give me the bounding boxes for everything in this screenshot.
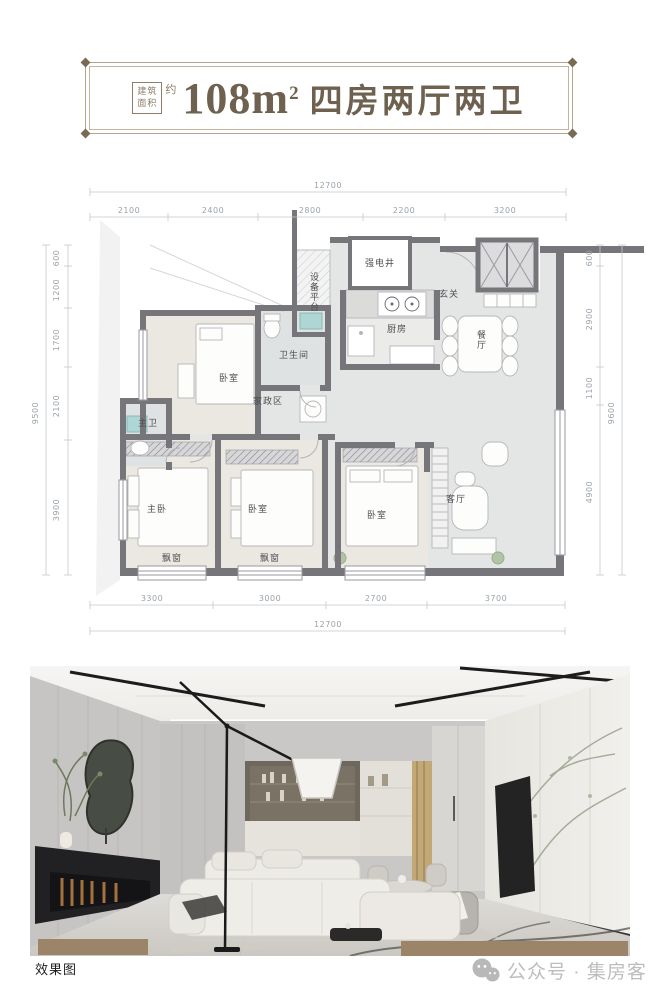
room-label-bay-window-mid: 飘窗 <box>260 552 280 564</box>
dim-left-2: 1200 <box>52 279 61 301</box>
photo-bar-right <box>401 941 628 956</box>
laundry-washer <box>300 396 326 422</box>
dim-top-5: 3200 <box>494 206 516 215</box>
plan-shadow <box>96 220 120 596</box>
dim-left-4: 2100 <box>52 395 61 417</box>
elevator-shaft <box>478 240 536 290</box>
room-label-bedroom3: 卧室 <box>367 509 387 521</box>
room-label-master-bath: 主卫 <box>138 417 158 429</box>
interior-rendering-svg <box>30 666 630 956</box>
banner-inner-frame: 建筑面积 约 108m2 四房两厅两卫 <box>89 66 569 130</box>
vase <box>60 832 72 848</box>
room-label-platform: 设备平台 <box>308 272 319 312</box>
layout-title: 四房两厅两卫 <box>310 74 526 122</box>
wavy-mirror <box>86 740 133 834</box>
room-label-bedroom4: 卧室 <box>219 372 239 384</box>
interior-rendering-photo <box>30 666 630 956</box>
room-label-dining: 餐厅 <box>475 329 486 350</box>
area-tag-box: 建筑面积 <box>132 82 162 114</box>
dim-bottom-4: 3700 <box>485 594 507 603</box>
photo-caption: 效果图 <box>35 959 77 978</box>
watermark-text: 公众号 · 集房客 <box>507 957 647 984</box>
dim-left-5: 3900 <box>52 499 61 521</box>
corner-mark <box>568 129 578 139</box>
watermark: 公众号 · 集房客 <box>472 957 647 984</box>
corner-mark <box>81 129 91 139</box>
dim-bottom-1: 3300 <box>141 594 163 603</box>
room-label-shaft: 强电井 <box>365 257 395 269</box>
corner-mark <box>568 58 578 68</box>
photo-bar-left <box>38 939 148 955</box>
dim-left-1: 600 <box>52 250 61 267</box>
leaning-art-panel <box>495 776 535 898</box>
bed-3 <box>346 466 418 546</box>
master-bed <box>128 468 208 546</box>
room-label-master-bedroom: 主卧 <box>147 503 167 515</box>
title-banner: 建筑面积 约 108m2 四房两厅两卫 <box>85 62 573 134</box>
dim-top-4: 2200 <box>393 206 415 215</box>
room-label-bathroom: 卫生间 <box>279 349 309 361</box>
setback-lines <box>150 245 292 312</box>
dim-left-3: 1700 <box>52 329 61 351</box>
approx-label: 约 <box>165 81 176 97</box>
dim-bottom-total: 12700 <box>314 620 342 629</box>
dim-top-3: 2800 <box>299 206 321 215</box>
area-tag-top: 建筑 <box>133 86 161 98</box>
dim-right-4: 4900 <box>585 481 594 503</box>
room-label-bedroom2: 卧室 <box>248 503 268 515</box>
wechat-icon <box>472 958 500 984</box>
area-value: 108m2 <box>182 73 299 124</box>
room-label-kitchen: 厨房 <box>387 323 407 335</box>
room-label-bay-window-left: 飘窗 <box>162 552 182 564</box>
dim-top-1: 2100 <box>118 206 140 215</box>
room-label-entry: 玄关 <box>439 288 459 300</box>
dim-top-2: 2400 <box>202 206 224 215</box>
room-label-laundry: 家政区 <box>253 395 283 407</box>
floor-plan: 强电井 设备平台 玄关 厨房 餐厅 卧室 卫生间 家政区 主卫 主卧 卧室 卧室… <box>0 150 660 662</box>
area-exponent: 2 <box>289 83 300 104</box>
area-tag-bottom: 面积 <box>133 98 161 110</box>
dim-top-total: 12700 <box>314 181 342 190</box>
room-label-living: 客厅 <box>446 493 466 505</box>
shoe-cabinet <box>484 294 536 307</box>
dim-right-total: 9600 <box>607 402 616 424</box>
dim-left-total: 9500 <box>31 402 40 424</box>
bed-2 <box>231 470 313 546</box>
dim-bottom-2: 3000 <box>259 594 281 603</box>
dim-right-3: 1100 <box>585 377 594 399</box>
dim-bottom-3: 2700 <box>365 594 387 603</box>
dim-right-2: 2900 <box>585 308 594 330</box>
floor-plan-svg: 强电井 设备平台 玄关 厨房 餐厅 卧室 卫生间 家政区 主卫 主卧 卧室 卧室… <box>0 150 660 662</box>
dim-right-1: 600 <box>585 250 594 267</box>
